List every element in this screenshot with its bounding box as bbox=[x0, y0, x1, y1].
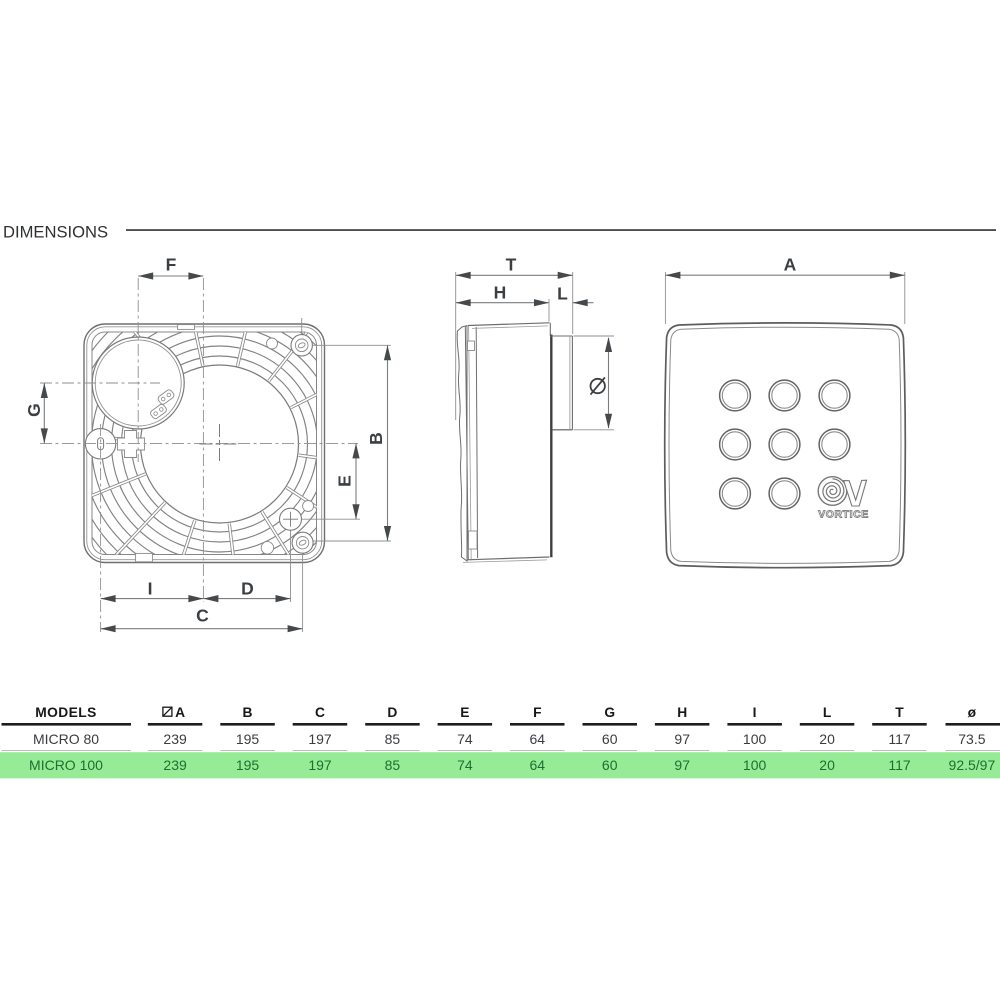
svg-text:74: 74 bbox=[457, 757, 473, 773]
svg-text:100: 100 bbox=[743, 731, 767, 747]
svg-text:85: 85 bbox=[385, 731, 401, 747]
svg-text:239: 239 bbox=[163, 757, 187, 773]
svg-text:197: 197 bbox=[308, 731, 332, 747]
svg-text:85: 85 bbox=[385, 757, 401, 773]
svg-text:64: 64 bbox=[530, 757, 546, 773]
svg-text:64: 64 bbox=[530, 731, 546, 747]
svg-text:C: C bbox=[315, 705, 325, 720]
svg-text:117: 117 bbox=[888, 731, 911, 747]
svg-text:DIMENSIONS: DIMENSIONS bbox=[3, 223, 108, 242]
svg-text:97: 97 bbox=[674, 731, 690, 747]
svg-text:97: 97 bbox=[674, 757, 690, 773]
svg-text:74: 74 bbox=[457, 731, 473, 747]
svg-text:F: F bbox=[166, 255, 177, 275]
svg-text:92.5/97: 92.5/97 bbox=[949, 757, 996, 773]
svg-text:A: A bbox=[784, 255, 797, 275]
svg-text:117: 117 bbox=[888, 757, 911, 773]
svg-text:239: 239 bbox=[163, 731, 187, 747]
svg-text:B: B bbox=[366, 432, 386, 445]
svg-text:F: F bbox=[533, 705, 541, 720]
svg-text:T: T bbox=[895, 705, 904, 720]
svg-text:ø: ø bbox=[968, 705, 977, 720]
svg-text:A: A bbox=[175, 705, 185, 720]
svg-text:60: 60 bbox=[602, 731, 618, 747]
svg-text:I: I bbox=[148, 579, 153, 599]
svg-text:D: D bbox=[241, 579, 254, 599]
svg-text:E: E bbox=[335, 475, 355, 487]
svg-text:20: 20 bbox=[819, 731, 835, 747]
svg-text:D: D bbox=[387, 705, 397, 720]
svg-text:MODELS: MODELS bbox=[35, 705, 96, 720]
svg-text:197: 197 bbox=[308, 757, 332, 773]
svg-text:195: 195 bbox=[236, 731, 260, 747]
svg-text:MICRO 100: MICRO 100 bbox=[29, 757, 103, 773]
svg-text:100: 100 bbox=[743, 757, 767, 773]
svg-text:L: L bbox=[823, 705, 831, 720]
svg-text:195: 195 bbox=[236, 757, 260, 773]
svg-text:60: 60 bbox=[602, 757, 618, 773]
svg-text:G: G bbox=[604, 705, 615, 720]
svg-text:C: C bbox=[196, 606, 209, 626]
svg-text:VORTICE: VORTICE bbox=[818, 509, 869, 521]
svg-text:L: L bbox=[557, 283, 568, 303]
svg-text:MICRO 80: MICRO 80 bbox=[33, 731, 99, 747]
svg-text:H: H bbox=[677, 705, 687, 720]
svg-text:H: H bbox=[494, 282, 507, 302]
svg-text:73.5: 73.5 bbox=[958, 731, 985, 747]
svg-text:20: 20 bbox=[819, 757, 835, 773]
svg-text:I: I bbox=[753, 705, 757, 720]
svg-text:T: T bbox=[506, 255, 517, 275]
svg-text:E: E bbox=[460, 705, 469, 720]
svg-text:B: B bbox=[243, 705, 253, 720]
svg-text:G: G bbox=[24, 403, 44, 417]
